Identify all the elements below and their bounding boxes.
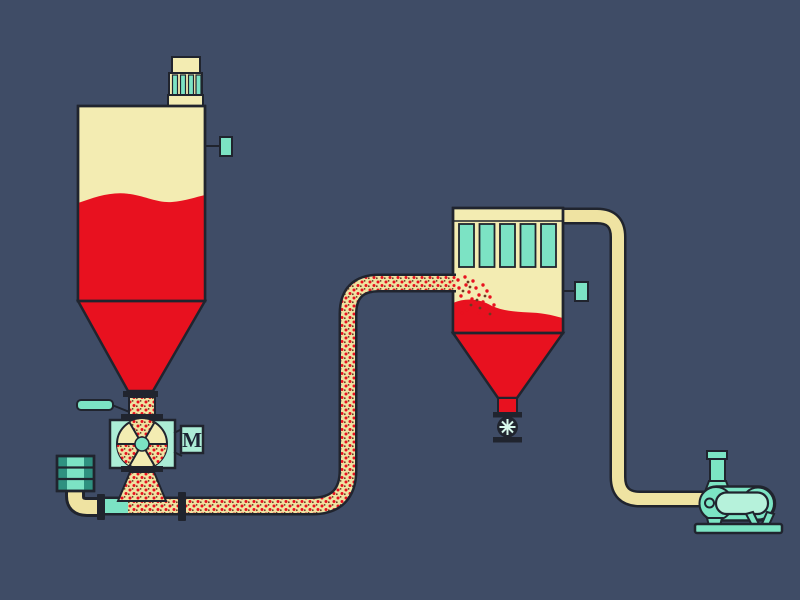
blower-shaft-arm [716, 493, 768, 515]
rotor-hub [135, 437, 149, 451]
pipe-flange-1 [97, 494, 105, 520]
silo-vent-filter [168, 57, 203, 107]
blower-inlet-eye [705, 499, 714, 508]
rotary-valve-feeder [110, 419, 175, 469]
diagram-canvas: M [0, 0, 800, 600]
valve-inlet-spool [129, 397, 155, 416]
motor-label: M [182, 428, 202, 452]
receiver-filter-bags [459, 224, 556, 267]
pipe-flange-2 [178, 492, 186, 521]
blower-base-plate [695, 524, 782, 533]
blower-intake-stack [706, 451, 729, 489]
silo-material-level [78, 193, 205, 300]
process-diagram: M [0, 0, 800, 600]
